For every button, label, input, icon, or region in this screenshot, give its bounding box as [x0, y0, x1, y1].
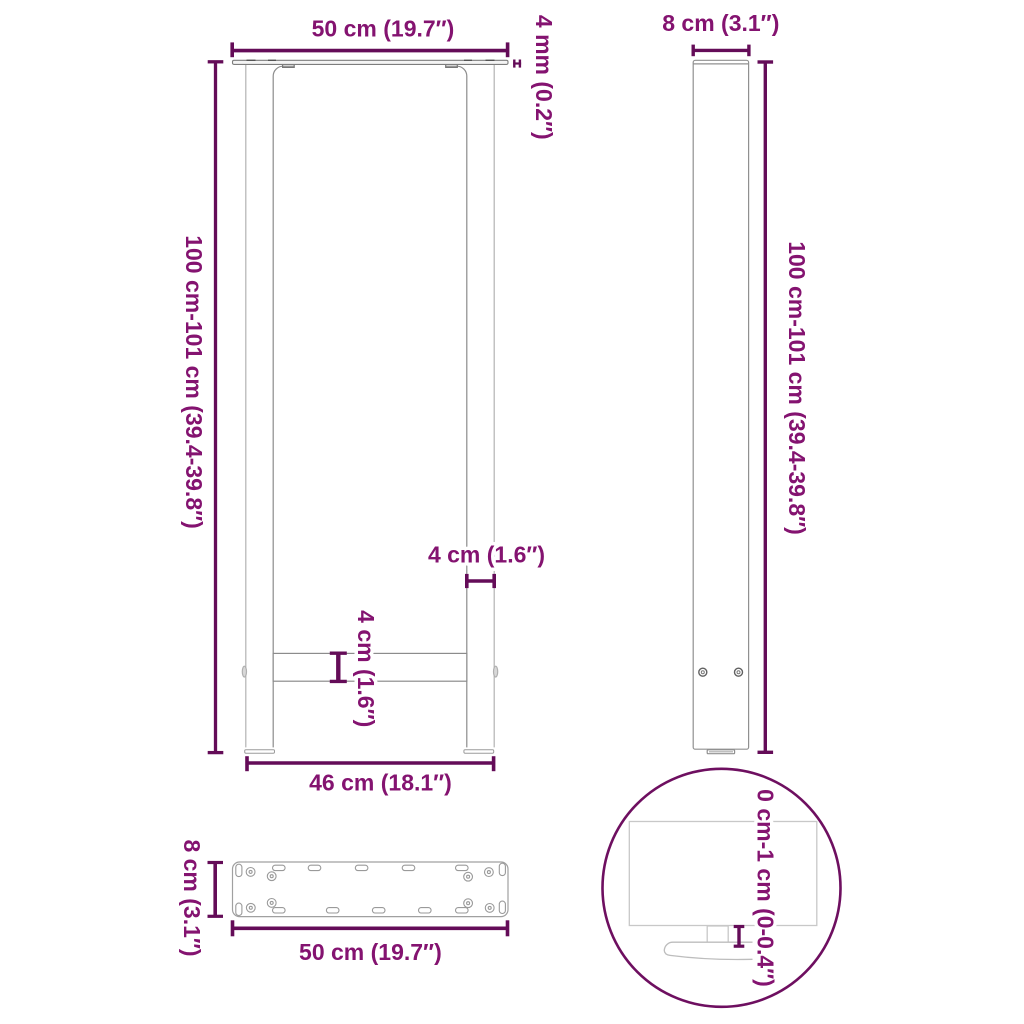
- svg-text:50 cm (19.7″): 50 cm (19.7″): [312, 16, 455, 42]
- svg-text:50 cm (19.7″): 50 cm (19.7″): [299, 939, 442, 965]
- svg-text:4 cm (1.6″): 4 cm (1.6″): [353, 610, 379, 727]
- svg-text:46 cm (18.1″): 46 cm (18.1″): [309, 770, 452, 796]
- svg-text:100 cm-101 cm (39.4-39.8″): 100 cm-101 cm (39.4-39.8″): [181, 235, 207, 529]
- svg-text:100 cm-101 cm (39.4-39.8″): 100 cm-101 cm (39.4-39.8″): [784, 241, 810, 535]
- svg-text:0 cm-1 cm (0-0.4″): 0 cm-1 cm (0-0.4″): [753, 789, 779, 987]
- svg-text:4 cm (1.6″): 4 cm (1.6″): [428, 542, 545, 568]
- svg-text:4 mm (0.2″): 4 mm (0.2″): [531, 15, 557, 140]
- svg-text:8 cm (3.1″): 8 cm (3.1″): [662, 10, 779, 36]
- svg-text:8 cm (3.1″): 8 cm (3.1″): [179, 839, 205, 956]
